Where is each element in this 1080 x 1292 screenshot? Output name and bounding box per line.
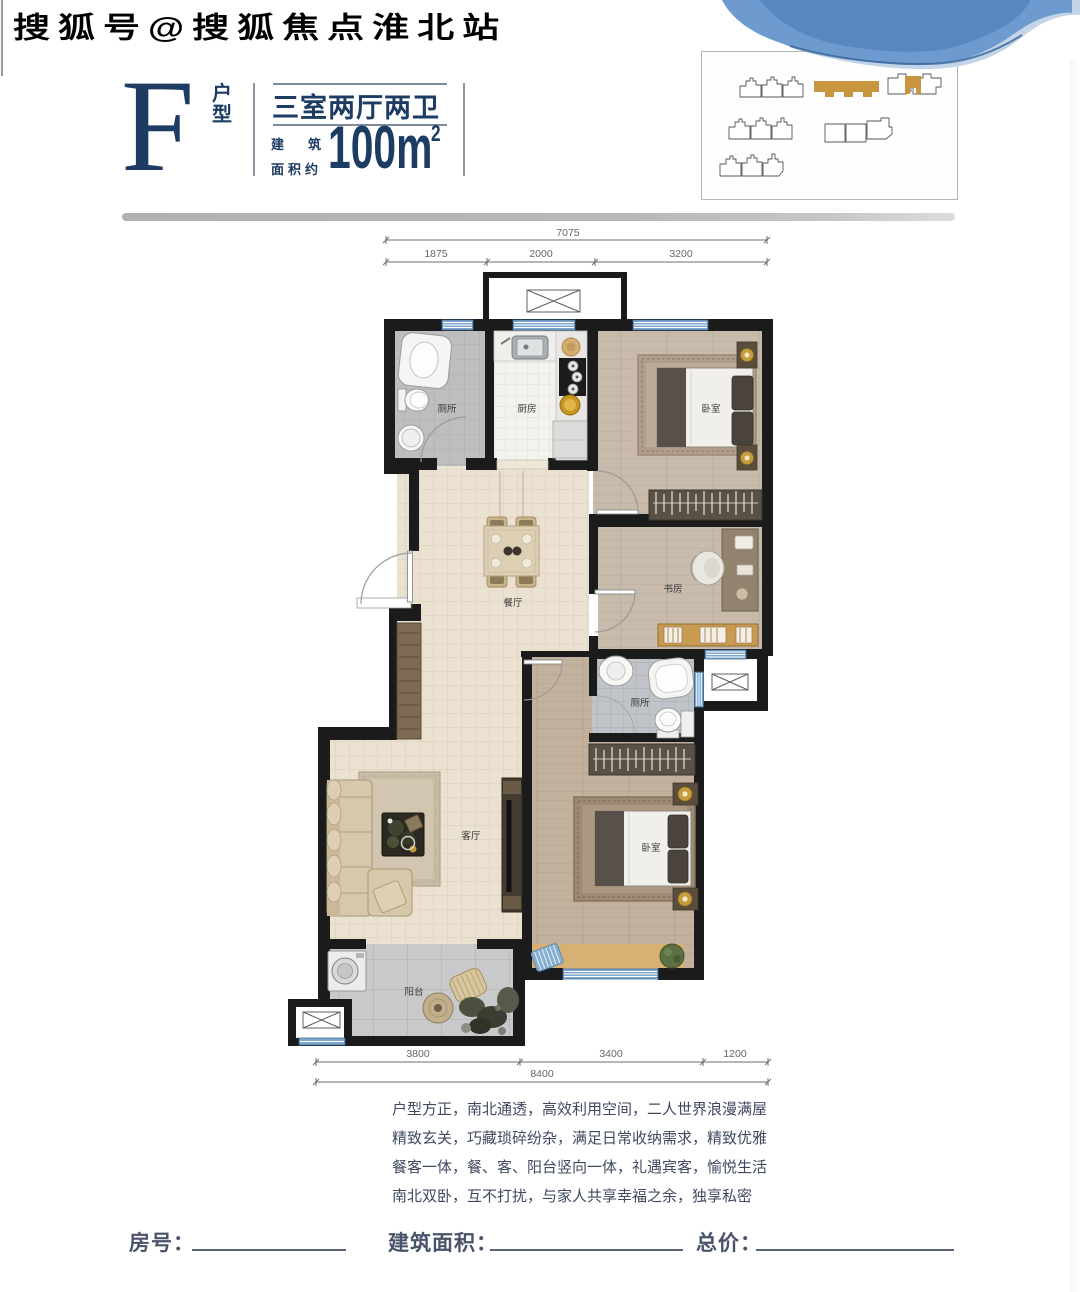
svg-text:1875: 1875: [424, 248, 448, 260]
svg-text:厕所: 厕所: [630, 698, 650, 709]
svg-text:客厅: 客厅: [461, 830, 481, 842]
svg-text:1200: 1200: [723, 1048, 747, 1060]
svg-text:3200: 3200: [669, 248, 693, 260]
svg-text:厕所: 厕所: [437, 404, 457, 415]
svg-text:卧室: 卧室: [641, 842, 660, 854]
svg-text:书房: 书房: [663, 583, 682, 595]
svg-text:8400: 8400: [530, 1068, 554, 1080]
svg-text:厨房: 厨房: [517, 403, 536, 415]
svg-text:7075: 7075: [556, 227, 580, 239]
svg-text:3400: 3400: [599, 1048, 623, 1060]
svg-text:3800: 3800: [406, 1048, 430, 1060]
svg-text:阳台: 阳台: [404, 986, 423, 998]
svg-text:餐厅: 餐厅: [503, 597, 523, 609]
svg-text:2000: 2000: [529, 248, 553, 260]
svg-text:卧室: 卧室: [701, 403, 720, 415]
